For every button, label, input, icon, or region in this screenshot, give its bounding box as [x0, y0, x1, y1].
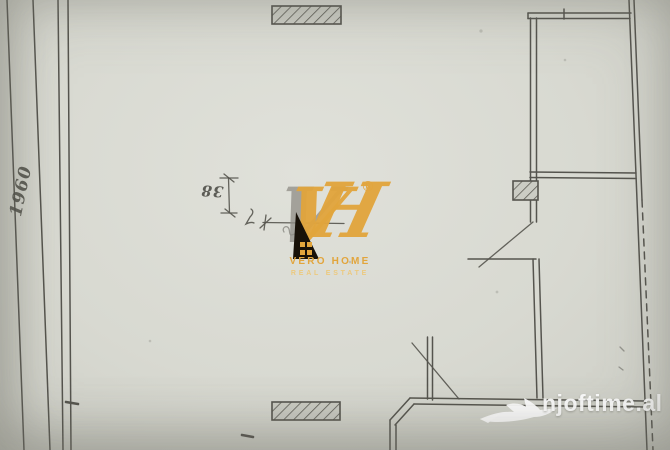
logo-tagline: REAL ESTATE [260, 270, 400, 277]
njoftime-watermark: njoftime.al [478, 388, 670, 450]
house-triangle-icon [293, 211, 320, 260]
wall-pier-top [272, 6, 341, 24]
watermark-text: njoftime.al [542, 390, 663, 417]
door-bottom [412, 337, 459, 400]
floor-plan-photo: 1960 38 V V H ® VERO HOME REAL ESTATE nj… [0, 0, 670, 450]
top-right-room-walls [528, 9, 636, 222]
registered-trademark-icon: ® [361, 179, 375, 195]
wall-pier-mid-right [513, 181, 538, 200]
right-exterior-wall [629, 0, 653, 450]
wall-pier-bottom [272, 402, 340, 420]
dimension-text-38: 38 [196, 181, 227, 199]
vero-home-logo: V V H ® VERO HOME REAL ESTATE [260, 170, 400, 285]
left-boundary-lines [7, 0, 71, 450]
door-mid-right [468, 222, 543, 398]
logo-name: VERO HOME [260, 256, 400, 267]
